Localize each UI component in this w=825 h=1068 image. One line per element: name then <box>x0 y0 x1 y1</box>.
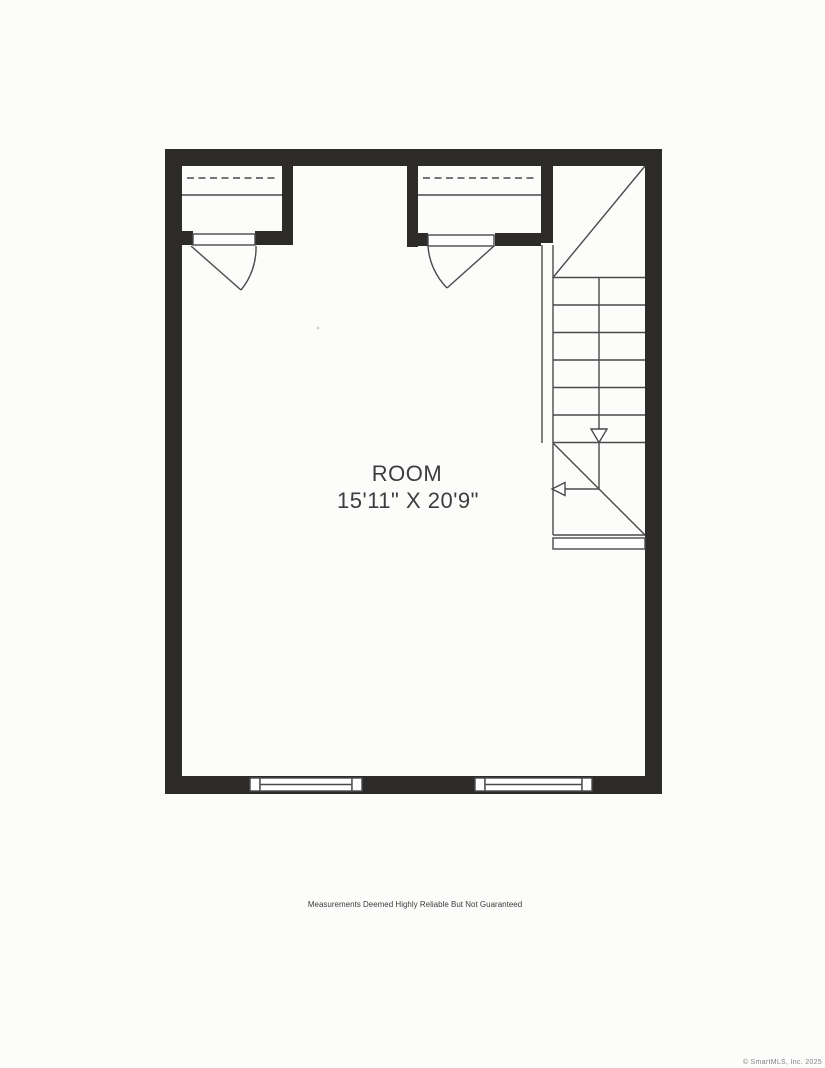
closet-left-bottom-stub-right <box>255 231 282 245</box>
disclaimer-text: Measurements Deemed Highly Reliable But … <box>308 900 522 909</box>
stair-down-arrow <box>591 429 607 443</box>
door-swing-arc <box>241 246 256 290</box>
window-right <box>475 778 592 791</box>
window-jamb <box>475 778 485 791</box>
door-panel <box>428 235 494 246</box>
closet-left-bottom-stub-left <box>182 231 193 245</box>
window-left <box>250 778 362 791</box>
door-leaf-line <box>447 246 494 288</box>
floor-plan-page: ROOM 15'11" X 20'9" Measurements Deemed … <box>0 0 825 1068</box>
closet-middle-bottom-stub-right <box>495 233 541 246</box>
stair-upper-landing-diagonal <box>553 166 645 278</box>
closet-door-middle <box>428 235 494 288</box>
door-leaf-line <box>191 246 241 290</box>
stair-bottom-bar <box>553 538 645 549</box>
window-jamb <box>582 778 592 791</box>
staircase <box>542 166 645 549</box>
room-label: ROOM <box>372 461 442 486</box>
window-jamb <box>250 778 260 791</box>
closet-middle-left-wall <box>407 166 418 247</box>
wall-top <box>165 149 662 166</box>
closet-middle-right-wall <box>541 166 553 243</box>
closet-left <box>182 178 282 195</box>
wall-right <box>645 149 662 794</box>
closet-left-right-wall <box>282 166 293 245</box>
copyright-text: © SmartMLS, Inc. 2025 <box>743 1058 822 1066</box>
floor-plan-svg: ROOM 15'11" X 20'9" Measurements Deemed … <box>0 0 825 1068</box>
window-jamb <box>352 778 362 791</box>
door-swing-arc <box>428 246 447 288</box>
scan-speck <box>317 327 320 330</box>
closet-middle <box>418 178 541 195</box>
door-panel <box>193 234 255 245</box>
closet-middle-bottom-stub-left <box>418 233 428 246</box>
closet-door-left <box>191 234 256 290</box>
wall-left <box>165 149 182 794</box>
stair-left-arrow-head <box>552 483 565 496</box>
room-dimensions: 15'11" X 20'9" <box>337 488 479 513</box>
